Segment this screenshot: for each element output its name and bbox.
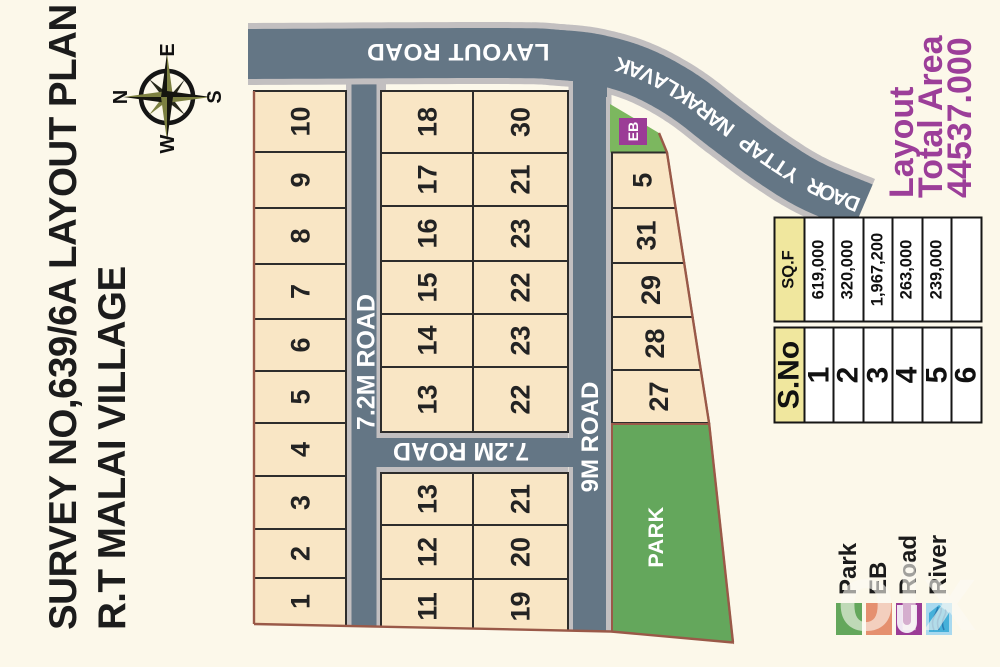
svg-text:19: 19 bbox=[506, 591, 536, 621]
svg-text:27: 27 bbox=[644, 381, 674, 411]
svg-text:10: 10 bbox=[286, 106, 316, 136]
svg-text:31: 31 bbox=[632, 220, 662, 250]
svg-text:11: 11 bbox=[413, 592, 443, 621]
svg-text:N: N bbox=[110, 90, 132, 104]
svg-text:1: 1 bbox=[286, 594, 316, 609]
svg-text:9: 9 bbox=[286, 172, 316, 187]
svg-text:9M ROAD: 9M ROAD bbox=[577, 382, 604, 493]
svg-text:23: 23 bbox=[506, 325, 536, 355]
svg-text:16: 16 bbox=[413, 218, 443, 248]
svg-text:2: 2 bbox=[286, 546, 316, 561]
svg-text:W: W bbox=[157, 134, 179, 153]
svg-text:20: 20 bbox=[506, 537, 536, 567]
svg-text:23: 23 bbox=[506, 218, 536, 248]
svg-text:7.2M ROAD: 7.2M ROAD bbox=[393, 437, 529, 465]
svg-text:30: 30 bbox=[506, 107, 536, 137]
svg-text:EB: EB bbox=[625, 122, 641, 141]
svg-text:14: 14 bbox=[413, 325, 443, 355]
svg-text:E: E bbox=[157, 43, 179, 56]
svg-text:17: 17 bbox=[413, 164, 443, 194]
svg-text:5: 5 bbox=[286, 389, 316, 404]
svg-text:28: 28 bbox=[640, 328, 670, 358]
svg-text:13: 13 bbox=[413, 484, 443, 514]
svg-text:12: 12 bbox=[413, 537, 443, 567]
svg-text:22: 22 bbox=[506, 384, 536, 414]
svg-text:21: 21 bbox=[506, 164, 536, 194]
svg-text:7: 7 bbox=[286, 284, 316, 299]
svg-text:5: 5 bbox=[627, 173, 657, 188]
svg-text:8: 8 bbox=[286, 228, 316, 243]
svg-text:13: 13 bbox=[413, 384, 443, 414]
svg-text:6: 6 bbox=[286, 337, 316, 352]
svg-text:18: 18 bbox=[413, 107, 443, 137]
svg-text:PARK: PARK bbox=[644, 506, 668, 567]
svg-text:S: S bbox=[204, 90, 226, 103]
svg-text:7.2M ROAD: 7.2M ROAD bbox=[352, 294, 380, 430]
svg-text:22: 22 bbox=[506, 272, 536, 302]
svg-text:21: 21 bbox=[506, 484, 536, 514]
svg-text:3: 3 bbox=[286, 495, 316, 510]
svg-text:4: 4 bbox=[286, 442, 316, 457]
svg-text:29: 29 bbox=[636, 275, 666, 305]
svg-text:LAYOUT ROAD: LAYOUT ROAD bbox=[367, 38, 550, 65]
svg-text:15: 15 bbox=[413, 272, 443, 302]
